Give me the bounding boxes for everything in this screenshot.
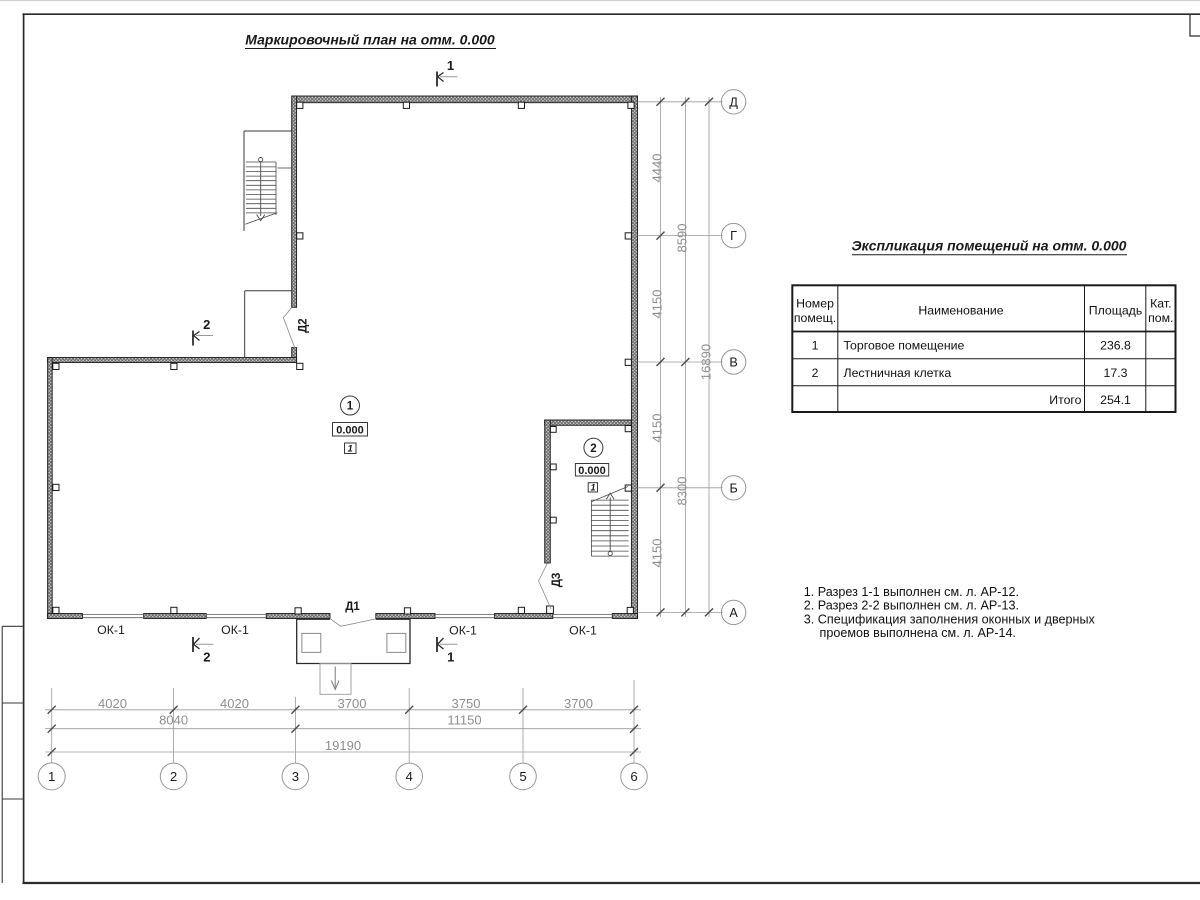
svg-text:2: 2 xyxy=(203,649,210,664)
svg-text:Д2: Д2 xyxy=(298,318,310,333)
svg-text:3: 3 xyxy=(292,769,299,784)
svg-text:4020: 4020 xyxy=(220,696,249,711)
svg-text:4150: 4150 xyxy=(650,539,665,568)
svg-text:0.000: 0.000 xyxy=(336,424,364,436)
svg-text:Итого: Итого xyxy=(1049,393,1081,407)
svg-text:помещ.: помещ. xyxy=(794,311,836,325)
svg-text:254.1: 254.1 xyxy=(1100,393,1131,407)
svg-text:Маркировочный план на отм. 0.0: Маркировочный план на отм. 0.000 xyxy=(245,32,495,48)
svg-text:5: 5 xyxy=(519,769,526,784)
svg-text:4150: 4150 xyxy=(650,290,665,319)
svg-text:ОК-1: ОК-1 xyxy=(449,624,477,638)
svg-text:1: 1 xyxy=(348,444,353,455)
svg-text:1: 1 xyxy=(48,769,55,784)
svg-text:Д: Д xyxy=(729,95,738,109)
svg-text:Торговое помещение: Торговое помещение xyxy=(844,339,965,353)
svg-text:3750: 3750 xyxy=(452,696,481,711)
svg-text:Д3: Д3 xyxy=(551,573,563,588)
svg-text:16890: 16890 xyxy=(699,344,714,380)
svg-text:1: 1 xyxy=(447,650,454,665)
svg-text:Наименование: Наименование xyxy=(918,304,1003,318)
svg-text:пом.: пом. xyxy=(1148,311,1173,325)
svg-text:2: 2 xyxy=(590,443,596,455)
svg-text:6: 6 xyxy=(630,769,637,784)
svg-text:Г: Г xyxy=(730,229,737,243)
svg-text:ОК-1: ОК-1 xyxy=(97,623,125,637)
svg-text:3700: 3700 xyxy=(564,696,593,711)
svg-text:2: 2 xyxy=(170,769,177,784)
svg-text:3. Спецификация заполнения око: 3. Спецификация заполнения оконных и две… xyxy=(804,612,1096,626)
svg-text:Д1: Д1 xyxy=(345,601,360,613)
svg-text:Площадь: Площадь xyxy=(1089,304,1143,318)
svg-text:1: 1 xyxy=(347,401,354,413)
svg-text:Номер: Номер xyxy=(796,297,834,311)
svg-text:В: В xyxy=(729,356,737,370)
svg-text:4440: 4440 xyxy=(650,154,665,183)
svg-text:19190: 19190 xyxy=(325,738,361,753)
svg-text:17.3: 17.3 xyxy=(1104,366,1128,380)
svg-text:2: 2 xyxy=(203,317,210,332)
svg-text:Б: Б xyxy=(729,481,737,495)
svg-text:0.000: 0.000 xyxy=(578,465,606,477)
svg-text:236.8: 236.8 xyxy=(1100,339,1131,353)
svg-text:проемов выполнена см. л. АР-14: проемов выполнена см. л. АР-14. xyxy=(820,626,1017,640)
svg-text:1: 1 xyxy=(447,58,454,73)
svg-text:1: 1 xyxy=(812,339,819,353)
svg-text:1: 1 xyxy=(590,483,595,493)
svg-text:4: 4 xyxy=(406,769,413,784)
svg-text:ОК-1: ОК-1 xyxy=(221,623,249,637)
svg-text:11150: 11150 xyxy=(447,713,481,728)
svg-text:А: А xyxy=(729,606,738,620)
svg-text:4150: 4150 xyxy=(650,414,665,443)
svg-text:ОК-1: ОК-1 xyxy=(569,624,597,638)
svg-text:Экспликация помещений на отм.: Экспликация помещений на отм. 0.000 xyxy=(852,238,1127,254)
svg-text:8040: 8040 xyxy=(159,713,188,728)
svg-text:Лестничная клетка: Лестничная клетка xyxy=(844,366,952,380)
svg-text:4020: 4020 xyxy=(98,696,127,711)
svg-text:1. Разрез 1-1 выполнен см. л.: 1. Разрез 1-1 выполнен см. л. АР-12. xyxy=(804,585,1019,599)
svg-text:2. Разрез 2-2 выполнен см. л.: 2. Разрез 2-2 выполнен см. л. АР-13. xyxy=(804,599,1019,613)
svg-text:8590: 8590 xyxy=(674,224,689,253)
svg-text:Кат.: Кат. xyxy=(1150,297,1171,311)
svg-text:8300: 8300 xyxy=(674,477,689,506)
svg-text:2: 2 xyxy=(812,366,819,380)
svg-text:3700: 3700 xyxy=(338,696,367,711)
